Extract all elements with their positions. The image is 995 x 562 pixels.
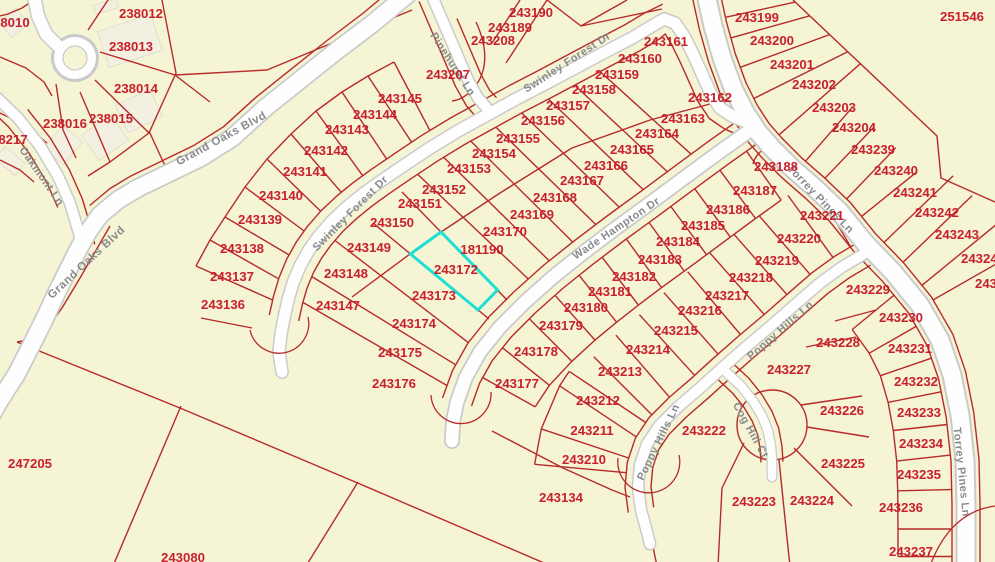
svg-text:243169: 243169 [510, 207, 554, 222]
svg-text:243174: 243174 [392, 316, 437, 331]
svg-text:243202: 243202 [792, 77, 836, 92]
svg-text:243183: 243183 [638, 252, 682, 267]
svg-text:243199: 243199 [735, 10, 779, 25]
svg-text:243240: 243240 [874, 163, 918, 178]
svg-text:243214: 243214 [626, 342, 671, 357]
svg-text:243207: 243207 [426, 67, 470, 82]
svg-text:238014: 238014 [114, 81, 159, 96]
svg-text:243149: 243149 [347, 240, 391, 255]
svg-text:243208: 243208 [471, 33, 515, 48]
svg-text:243142: 243142 [304, 143, 348, 158]
svg-text:243137: 243137 [210, 269, 254, 284]
svg-text:243211: 243211 [570, 423, 613, 438]
svg-text:243162: 243162 [688, 90, 732, 105]
svg-text:243161: 243161 [644, 34, 688, 49]
svg-text:243145: 243145 [378, 91, 422, 106]
svg-text:243167: 243167 [560, 173, 604, 188]
svg-text:243141: 243141 [283, 164, 327, 179]
svg-text:238016: 238016 [43, 116, 87, 131]
svg-text:243178: 243178 [514, 344, 558, 359]
svg-text:243186: 243186 [706, 202, 750, 217]
svg-text:243215: 243215 [654, 323, 698, 338]
svg-text:181190: 181190 [460, 242, 503, 257]
svg-text:243220: 243220 [777, 231, 821, 246]
svg-text:238012: 238012 [119, 6, 163, 21]
svg-text:238013: 238013 [109, 39, 153, 54]
svg-text:243218: 243218 [729, 270, 773, 285]
svg-text:243230: 243230 [879, 310, 923, 325]
svg-text:243144: 243144 [353, 107, 398, 122]
svg-text:243190: 243190 [509, 5, 553, 20]
svg-text:243232: 243232 [894, 374, 938, 389]
svg-text:243138: 243138 [220, 241, 264, 256]
svg-text:243229: 243229 [846, 282, 890, 297]
svg-text:243158: 243158 [572, 82, 616, 97]
svg-text:243243: 243243 [935, 227, 979, 242]
svg-text:243175: 243175 [378, 345, 422, 360]
svg-text:243203: 243203 [812, 100, 856, 115]
svg-text:243152: 243152 [422, 182, 466, 197]
svg-text:243245: 243245 [975, 276, 995, 291]
svg-text:243160: 243160 [618, 51, 662, 66]
svg-text:243134: 243134 [539, 490, 584, 505]
svg-text:243233: 243233 [897, 405, 941, 420]
svg-text:238015: 238015 [89, 111, 133, 126]
svg-text:243080: 243080 [161, 550, 205, 562]
svg-text:243213: 243213 [598, 364, 642, 379]
svg-text:243226: 243226 [820, 403, 864, 418]
svg-text:8010: 8010 [0, 15, 29, 30]
svg-text:243176: 243176 [372, 376, 416, 391]
svg-text:243173: 243173 [412, 288, 456, 303]
svg-text:243223: 243223 [732, 494, 776, 509]
svg-text:243147: 243147 [316, 298, 360, 313]
svg-text:243201: 243201 [770, 57, 814, 72]
svg-text:243210: 243210 [562, 452, 606, 467]
svg-text:243225: 243225 [821, 456, 865, 471]
svg-text:243204: 243204 [832, 120, 877, 135]
svg-text:243217: 243217 [705, 288, 749, 303]
svg-text:243244: 243244 [961, 251, 995, 266]
svg-text:243148: 243148 [324, 266, 368, 281]
svg-text:243200: 243200 [750, 33, 794, 48]
svg-text:243239: 243239 [851, 142, 895, 157]
svg-text:243187: 243187 [733, 183, 777, 198]
svg-text:243172: 243172 [434, 262, 478, 277]
svg-text:243165: 243165 [610, 142, 654, 157]
svg-text:243136: 243136 [201, 297, 245, 312]
svg-text:243224: 243224 [790, 493, 835, 508]
svg-text:243188: 243188 [754, 159, 798, 174]
svg-text:243164: 243164 [635, 126, 680, 141]
svg-text:243221: 243221 [800, 208, 844, 223]
svg-text:247205: 247205 [8, 456, 52, 471]
svg-text:243241: 243241 [893, 185, 937, 200]
svg-text:243182: 243182 [612, 269, 656, 284]
svg-text:243157: 243157 [546, 98, 590, 113]
svg-text:243151: 243151 [398, 196, 442, 211]
svg-text:243153: 243153 [447, 161, 491, 176]
svg-text:8217: 8217 [0, 132, 28, 147]
svg-text:243242: 243242 [915, 205, 959, 220]
svg-text:243168: 243168 [533, 190, 577, 205]
svg-text:243231: 243231 [888, 341, 932, 356]
svg-text:243235: 243235 [897, 467, 941, 482]
svg-text:243237: 243237 [889, 544, 933, 559]
svg-text:243166: 243166 [584, 158, 628, 173]
svg-text:243179: 243179 [539, 318, 583, 333]
svg-text:243139: 243139 [238, 212, 282, 227]
svg-text:243234: 243234 [899, 436, 944, 451]
svg-text:243222: 243222 [682, 423, 726, 438]
svg-text:243156: 243156 [521, 113, 565, 128]
svg-text:243159: 243159 [595, 67, 639, 82]
svg-text:243170: 243170 [483, 224, 527, 239]
svg-text:243143: 243143 [325, 122, 369, 137]
svg-text:243177: 243177 [495, 376, 539, 391]
svg-text:243154: 243154 [472, 146, 517, 161]
svg-text:243163: 243163 [661, 111, 705, 126]
svg-text:243150: 243150 [370, 215, 414, 230]
svg-text:243228: 243228 [816, 335, 860, 350]
svg-text:243180: 243180 [564, 300, 608, 315]
svg-text:243219: 243219 [755, 253, 799, 268]
svg-text:251546: 251546 [940, 9, 984, 24]
svg-text:243227: 243227 [767, 362, 811, 377]
svg-text:243184: 243184 [656, 234, 701, 249]
svg-text:243212: 243212 [576, 393, 620, 408]
svg-text:243185: 243185 [681, 218, 725, 233]
svg-text:243181: 243181 [588, 284, 632, 299]
svg-text:243140: 243140 [259, 188, 303, 203]
svg-text:243236: 243236 [879, 500, 923, 515]
svg-text:243216: 243216 [678, 303, 722, 318]
svg-text:243155: 243155 [496, 131, 540, 146]
svg-text:243189: 243189 [488, 20, 532, 35]
